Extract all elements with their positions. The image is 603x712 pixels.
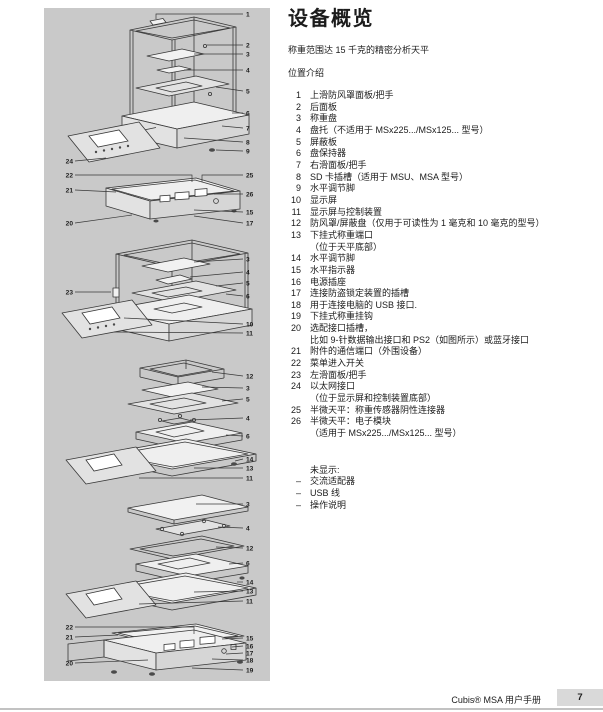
diagram-callout: 15 (246, 210, 254, 217)
diagram-callout: 12 (246, 374, 254, 381)
parts-list-row: 4 盘托（不适用于 MSx225.../MSx125... 型号） (288, 125, 594, 137)
parts-list-row: 11 显示屏与控制装置 (288, 207, 594, 219)
part-number: 25 (288, 405, 301, 417)
not-shown-label: 操作说明 (310, 500, 346, 512)
part-number: 19 (288, 311, 301, 323)
part-number: 10 (288, 195, 301, 207)
part-number: 13 (288, 230, 301, 242)
diagram-callout: 5 (246, 89, 250, 96)
diagram-callout: 4 (246, 68, 250, 75)
diagram-callout: 16 (246, 644, 254, 651)
part-number: 5 (288, 137, 301, 149)
parts-list-row: 2 后面板 (288, 102, 594, 114)
diagram-callout: 1 (246, 12, 250, 19)
figure-rear-connection-panel: 22 21 15 16 17 20 18 19 (66, 624, 254, 676)
part-label: 水平调节脚 (310, 253, 355, 265)
part-number: 12 (288, 218, 301, 230)
diagram-callout: 19 (246, 668, 254, 675)
diagram-callout: 3 (246, 386, 250, 393)
part-label: 半微天平：称重传感器阴性连接器 (310, 405, 445, 417)
part-number (288, 393, 301, 405)
part-number: 24 (288, 381, 301, 393)
dash-bullet: – (288, 476, 301, 488)
part-number: 9 (288, 183, 301, 195)
part-number: 8 (288, 172, 301, 184)
part-label: 盘托（不适用于 MSx225.../MSx125... 型号） (310, 125, 489, 137)
diagram-callout: 5 (246, 397, 250, 404)
part-label: 下挂式称重端口 (310, 230, 373, 242)
part-number: 6 (288, 148, 301, 160)
parts-list-row: 8 SD 卡插槽（适用于 MSU、MSA 型号） (288, 172, 594, 184)
parts-list-row: 16 电源插座 (288, 277, 594, 289)
part-number: 11 (288, 207, 301, 219)
page-number-badge: 7 (557, 689, 603, 706)
parts-list-row: 12 防风罩/屏蔽盘（仅用于可读性为 1 毫克和 10 毫克的型号） (288, 218, 594, 230)
part-number: 1 (288, 90, 301, 102)
diagram-callout: 4 (246, 526, 250, 533)
part-label: 水平指示器 (310, 265, 355, 277)
diagram-callout: 6 (246, 294, 250, 301)
part-label: 附件的通信端口（外围设备） (310, 346, 427, 358)
part-label: 菜单进入开关 (310, 358, 364, 370)
diagram-callout: 6 (246, 561, 250, 568)
diagram-callout: 12 (246, 546, 254, 553)
parts-list-row: 10 显示屏 (288, 195, 594, 207)
diagram-callout: 3 (246, 502, 250, 509)
not-shown-row: – USB 线 (288, 488, 594, 500)
part-label: （适用于 MSx225.../MSx125... 型号） (310, 428, 462, 440)
parts-list-row: 9 水平调节脚 (288, 183, 594, 195)
diagram-callout: 21 (66, 188, 74, 195)
part-number: 7 (288, 160, 301, 172)
diagram-callout: 20 (66, 221, 74, 228)
dash-bullet (288, 465, 301, 477)
part-label: （位于天平底部） (310, 242, 382, 254)
part-label: 下挂式称重挂钩 (310, 311, 373, 323)
part-label: 右滑面板/把手 (310, 160, 367, 172)
part-label: 防风罩/屏蔽盘（仅用于可读性为 1 毫克和 10 毫克的型号） (310, 218, 545, 230)
diagram-callout: 18 (246, 658, 254, 665)
parts-list-row: 21 附件的通信端口（外围设备） (288, 346, 594, 358)
diagram-callout: 11 (246, 599, 253, 606)
diagram-callout: 8 (246, 140, 250, 147)
part-number: 16 (288, 277, 301, 289)
dash-bullet: – (288, 488, 301, 500)
part-label: 上滑防风罩面板/把手 (310, 90, 394, 102)
part-label: 屏蔽板 (310, 137, 337, 149)
part-number: 21 (288, 346, 301, 358)
parts-list-row: 19 下挂式称重挂钩 (288, 311, 594, 323)
manual-page: 1 2 3 4 5 6 7 8 9 24 (0, 0, 603, 712)
diagram-callout: 23 (66, 290, 74, 297)
part-number: 4 (288, 125, 301, 137)
part-number: 14 (288, 253, 301, 265)
part-label: 选配接口插槽， (310, 323, 373, 335)
not-shown-label: USB 线 (310, 488, 340, 500)
not-shown-row: – 交流适配器 (288, 476, 594, 488)
diagram-callout: 9 (246, 149, 250, 156)
part-number: 26 (288, 416, 301, 428)
parts-list-row: 3 称重盘 (288, 113, 594, 125)
part-number (288, 335, 301, 347)
figure-exploded-pan-stack: 3 4 12 6 14 13 11 (66, 495, 256, 618)
diagram-callout: 17 (246, 221, 254, 228)
parts-list-row: 26 半微天平：电子模块 (288, 416, 594, 428)
part-label: 显示屏 (310, 195, 337, 207)
parts-list-row: 18 用于连接电脑的 USB 接口. (288, 300, 594, 312)
diagram-callout: 26 (246, 192, 254, 199)
parts-list-row: 13 下挂式称重端口 (288, 230, 594, 242)
part-number: 18 (288, 300, 301, 312)
diagram-callout: 10 (246, 322, 254, 329)
parts-list-row: 25 半微天平：称重传感器阴性连接器 (288, 405, 594, 417)
part-label: 左滑面板/把手 (310, 370, 367, 382)
diagram-callout: 17 (246, 651, 254, 658)
part-number (288, 242, 301, 254)
part-label: 用于连接电脑的 USB 接口. (310, 300, 417, 312)
diagram-callout: 14 (246, 580, 254, 587)
footer-manual-title: Cubis® MSA 用户手册 (451, 693, 541, 706)
diagram-callout: 14 (246, 457, 254, 464)
parts-list-row: （位于显示屏和控制装置底部） (288, 393, 594, 405)
figure-open-cage-balance: 3 4 5 23 6 10 11 (62, 240, 254, 341)
figure-exploded-shield-stack: 12 3 5 4 6 14 13 11 (66, 360, 256, 484)
diagram-callout: 11 (246, 331, 253, 338)
parts-list-row: 17 连接防盗锁定装置的插槽 (288, 288, 594, 300)
diagram-callout: 11 (246, 476, 253, 483)
parts-list-row: 6 盘保持器 (288, 148, 594, 160)
part-label: （位于显示屏和控制装置底部） (310, 393, 436, 405)
parts-list-row: 比如 9-针数据输出接口和 PS2（如图所示）或蓝牙接口 (288, 335, 594, 347)
parts-list-row: 5 屏蔽板 (288, 137, 594, 149)
part-label: 电源插座 (310, 277, 346, 289)
part-label: SD 卡插槽（适用于 MSU、MSA 型号） (310, 172, 468, 184)
parts-list-row: 22 菜单进入开关 (288, 358, 594, 370)
diagram-callout: 4 (246, 270, 250, 277)
figure-balance-with-draft-shield: 1 2 3 4 5 6 7 8 9 24 (66, 12, 250, 166)
diagram-callout: 6 (246, 434, 250, 441)
dash-bullet: – (288, 500, 301, 512)
diagram-callout: 5 (246, 281, 250, 288)
figure-electronics-module: 22 25 21 26 15 20 17 (66, 173, 254, 228)
parts-list-row: 1 上滑防风罩面板/把手 (288, 90, 594, 102)
part-number: 3 (288, 113, 301, 125)
diagram-callout: 6 (246, 111, 250, 118)
part-label: 盘保持器 (310, 148, 346, 160)
diagram-callout: 4 (246, 416, 250, 423)
parts-list-row: （位于天平底部） (288, 242, 594, 254)
diagram-callout: 24 (66, 159, 74, 166)
parts-list-row: 20 选配接口插槽， (288, 323, 594, 335)
part-number: 22 (288, 358, 301, 370)
parts-list: 1 上滑防风罩面板/把手 2 后面板 3 称重盘 4 盘托（不适用于 MSx22… (288, 90, 594, 440)
parts-list-row: 24 以太网接口 (288, 381, 594, 393)
diagram-callout: 3 (246, 52, 250, 59)
not-shown-label: 交流适配器 (310, 476, 355, 488)
diagram-callout: 22 (66, 625, 74, 632)
part-label: 以太网接口 (310, 381, 355, 393)
part-label: 比如 9-针数据输出接口和 PS2（如图所示）或蓝牙接口 (310, 335, 529, 347)
parts-list-row: 14 水平调节脚 (288, 253, 594, 265)
not-shown-row: 未显示: (288, 465, 594, 477)
parts-list-row: （适用于 MSx225.../MSx125... 型号） (288, 428, 594, 440)
section-label: 位置介绍 (288, 68, 594, 79)
part-number: 20 (288, 323, 301, 335)
diagram-callout: 22 (66, 173, 74, 180)
part-number (288, 428, 301, 440)
diagram-callout: 7 (246, 126, 250, 133)
part-number: 15 (288, 265, 301, 277)
part-label: 连接防盗锁定装置的插槽 (310, 288, 409, 300)
diagram-callout: 25 (246, 173, 254, 180)
device-diagram: 1 2 3 4 5 6 7 8 9 24 (44, 8, 270, 681)
content-column: 设备概览 称重范围达 15 千克的精密分析天平 位置介绍 1 上滑防风罩面板/把… (288, 6, 594, 511)
not-shown-label: 未显示: (310, 465, 340, 477)
diagram-panel: 1 2 3 4 5 6 7 8 9 24 (44, 8, 270, 681)
diagram-callout: 15 (246, 636, 254, 643)
diagram-callout: 13 (246, 466, 254, 473)
parts-list-row: 15 水平指示器 (288, 265, 594, 277)
diagram-callout: 3 (246, 257, 250, 264)
diagram-callout: 13 (246, 589, 254, 596)
part-number: 23 (288, 370, 301, 382)
footer-rule (0, 708, 603, 710)
part-label: 后面板 (310, 102, 337, 114)
part-label: 半微天平：电子模块 (310, 416, 391, 428)
subtitle: 称重范围达 15 千克的精密分析天平 (288, 45, 594, 56)
part-label: 水平调节脚 (310, 183, 355, 195)
page-title: 设备概览 (288, 6, 594, 32)
diagram-callout: 21 (66, 635, 74, 642)
diagram-callout: 2 (246, 43, 250, 50)
part-number: 2 (288, 102, 301, 114)
part-label: 称重盘 (310, 113, 337, 125)
not-shown-list: 未显示: – 交流适配器 – USB 线 – 操作说明 (288, 465, 594, 512)
part-label: 显示屏与控制装置 (310, 207, 382, 219)
parts-list-row: 23 左滑面板/把手 (288, 370, 594, 382)
part-number: 17 (288, 288, 301, 300)
parts-list-row: 7 右滑面板/把手 (288, 160, 594, 172)
diagram-callout: 20 (66, 661, 74, 668)
not-shown-row: – 操作说明 (288, 500, 594, 512)
